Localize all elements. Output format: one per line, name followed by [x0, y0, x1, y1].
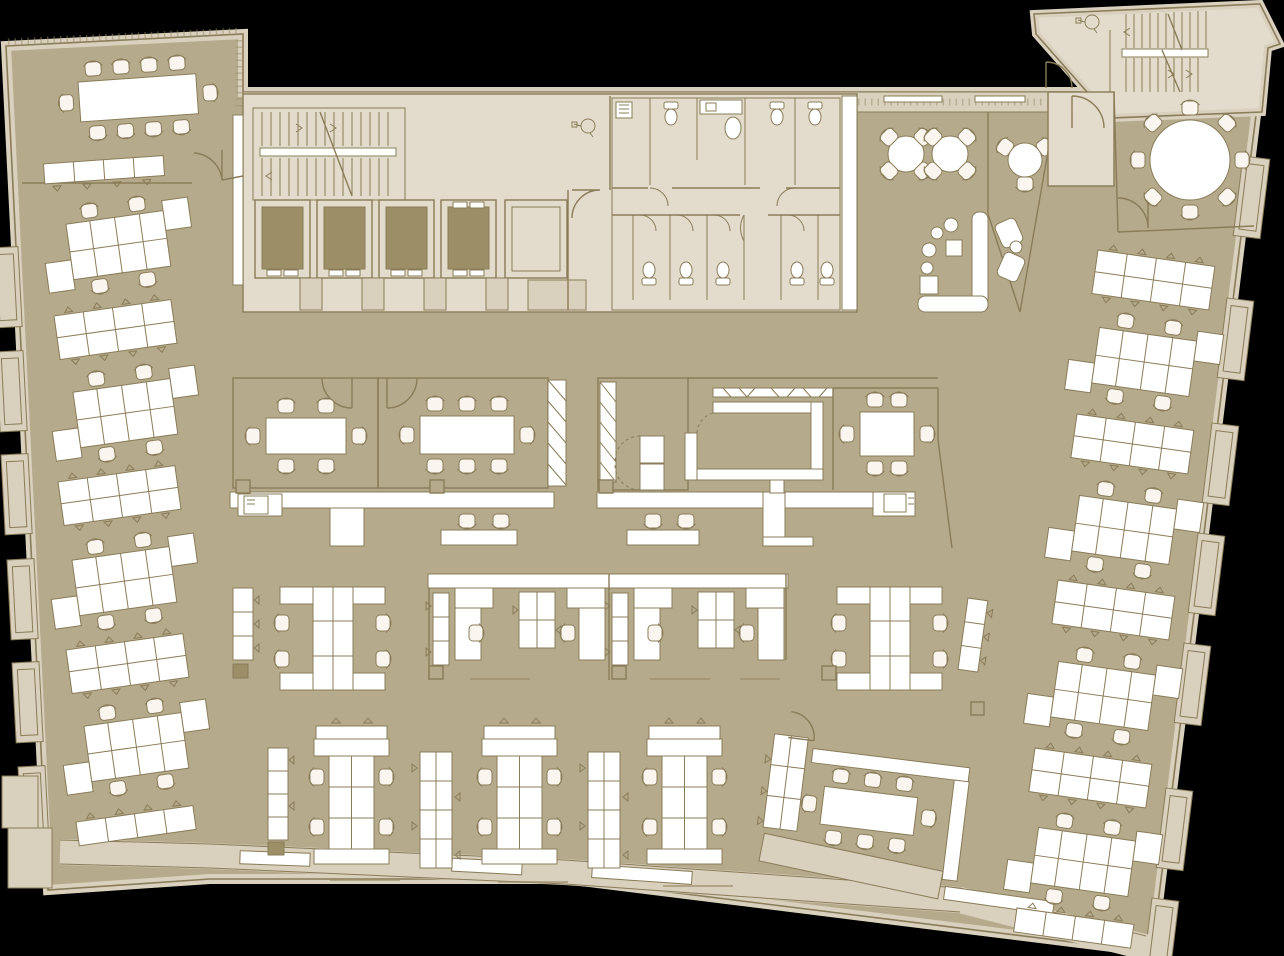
floor-plan: const data = JSON.parse(document.getElem… — [0, 0, 1284, 956]
elevator-shaft — [255, 200, 310, 278]
core-block — [233, 94, 857, 312]
service-room — [505, 200, 567, 278]
open-office-south — [268, 718, 733, 886]
elevator-shaft — [379, 200, 434, 278]
shelving — [548, 380, 566, 486]
elevator-shaft — [317, 200, 372, 278]
elevator-shaft — [441, 200, 496, 278]
entry-vestibule — [1048, 92, 1114, 186]
